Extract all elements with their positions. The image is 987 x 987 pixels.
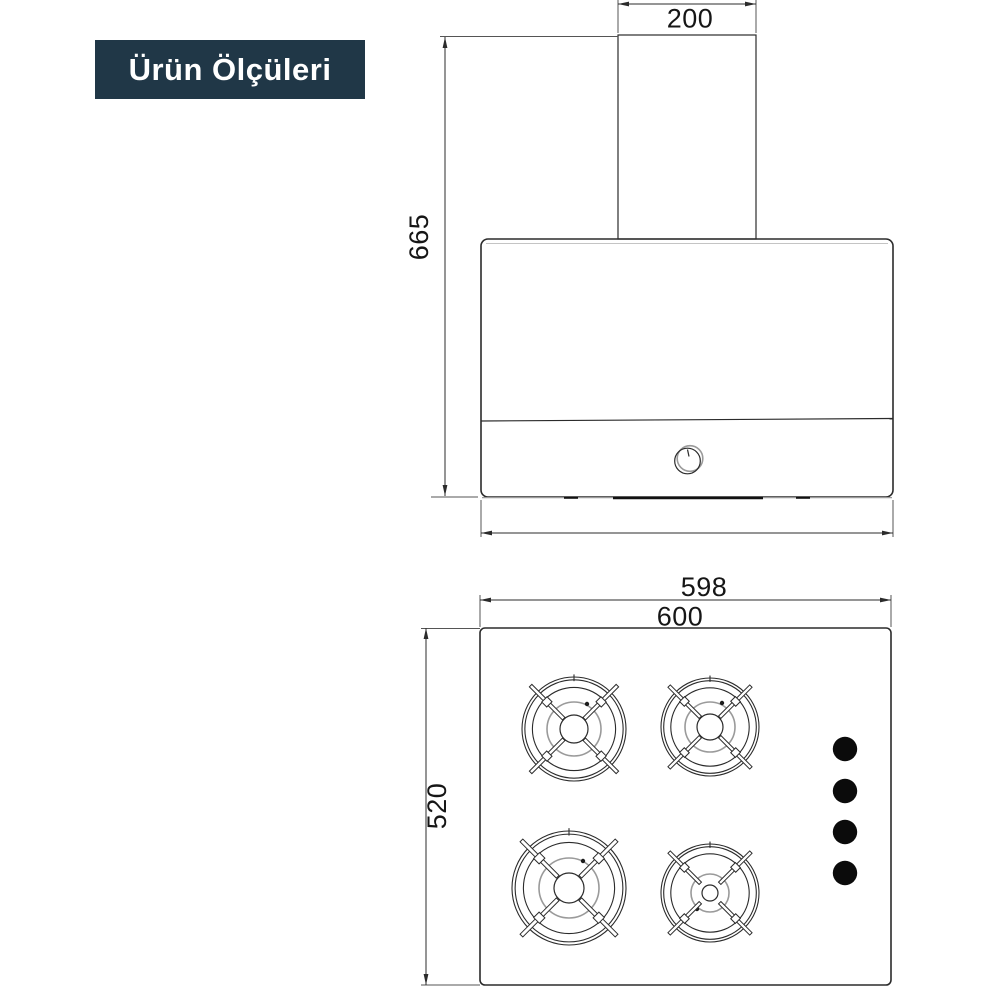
hob-body-outline xyxy=(480,628,891,985)
hob-knob-icon xyxy=(833,737,857,761)
knob-pointer xyxy=(688,450,690,457)
dim-hood-chimney-width: 200 xyxy=(618,0,756,34)
dim-label-hob-depth: 520 xyxy=(422,783,452,830)
hob-knob-icon xyxy=(833,779,857,803)
hood-diagram: 200 665 xyxy=(404,0,893,537)
hob-knob-column xyxy=(833,737,857,885)
hob-diagram: 598 600 520 xyxy=(421,572,891,985)
hood-body-outline xyxy=(481,239,893,497)
dim-label-chimney-width: 200 xyxy=(667,4,714,34)
burner-front-right xyxy=(661,676,759,776)
hob-knob-icon xyxy=(833,820,857,844)
hood-panel-divider xyxy=(481,419,893,422)
dim-hob-depth: 520 xyxy=(421,628,480,985)
hob-knob-icon xyxy=(833,861,857,885)
igniter-dot xyxy=(585,702,589,706)
hood-chimney-outline xyxy=(618,35,756,239)
dim-hood-width xyxy=(481,500,893,537)
product-dimensions-page: Ürün Ölçüleri xyxy=(0,0,987,987)
dim-hood-height: 665 xyxy=(404,37,618,498)
dim-label-hood-height: 665 xyxy=(404,214,434,261)
burner-rear-left xyxy=(512,828,626,945)
dim-label-hob-glass-width: 598 xyxy=(681,572,728,602)
dimension-drawing: 200 665 598 xyxy=(0,0,987,987)
hood-control-knob-icon xyxy=(675,446,703,474)
burner-front-left xyxy=(522,674,626,781)
dim-label-hob-width: 600 xyxy=(657,602,704,632)
igniter-dot xyxy=(581,859,585,863)
igniter-dot xyxy=(720,701,724,705)
burner-rear-right xyxy=(661,842,759,942)
